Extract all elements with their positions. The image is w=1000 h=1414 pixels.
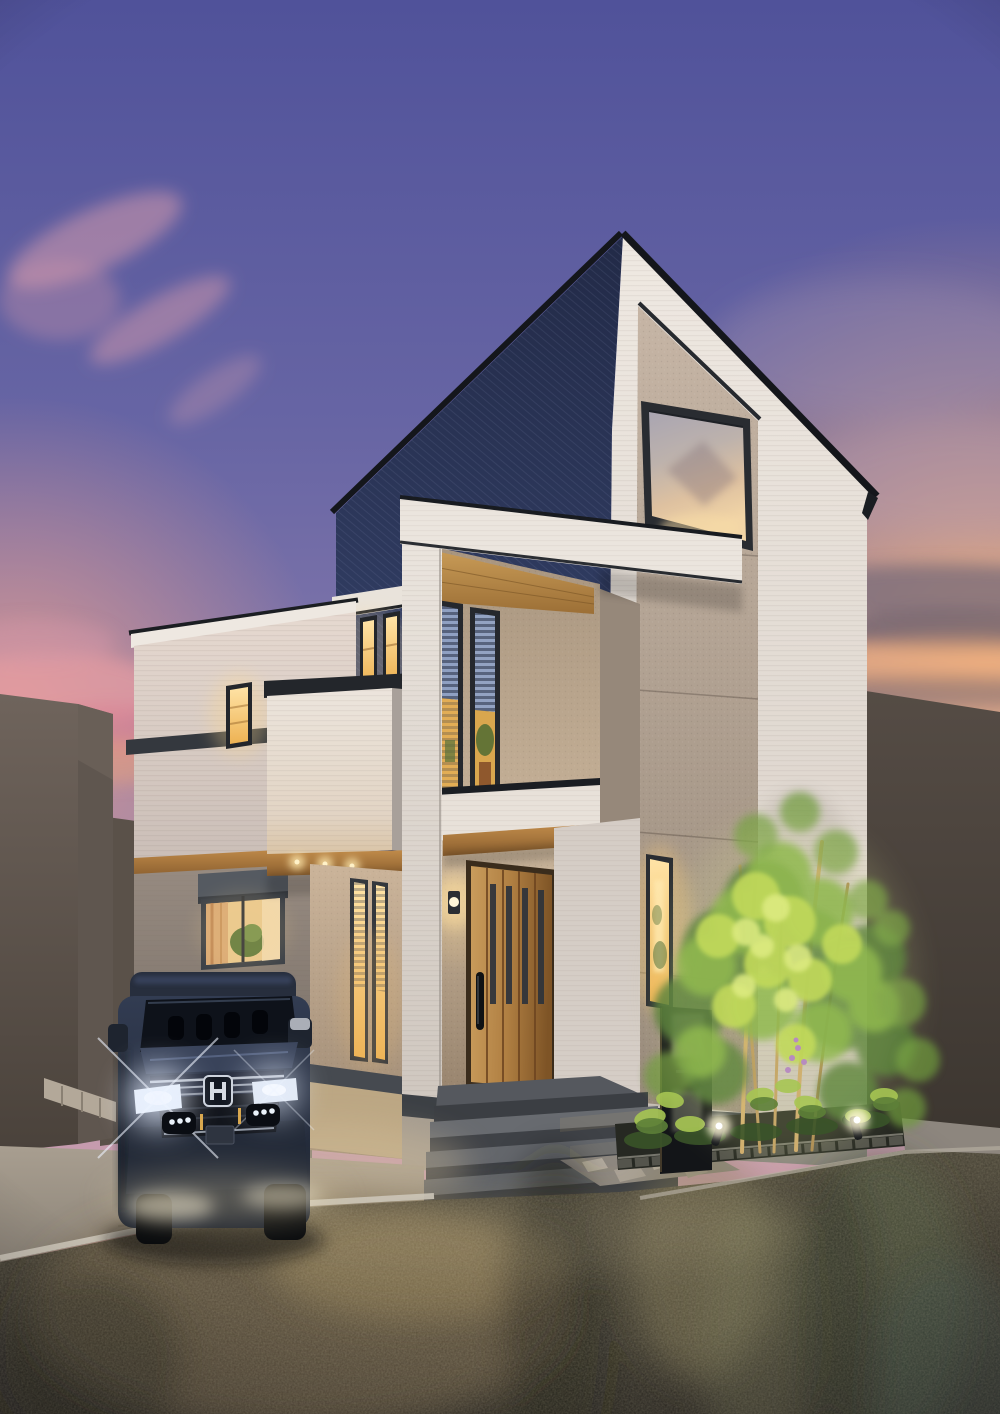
vignette-overlay — [0, 0, 1000, 1414]
architectural-rendering — [0, 0, 1000, 1414]
